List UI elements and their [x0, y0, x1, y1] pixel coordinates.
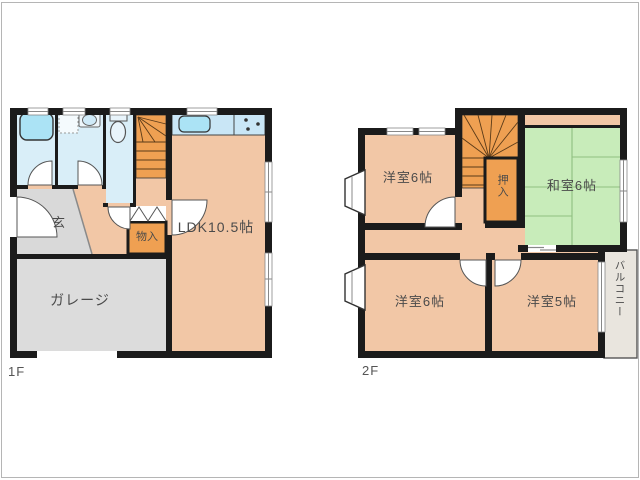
floor1-label: 1F	[8, 364, 25, 379]
window	[28, 108, 48, 115]
window	[598, 262, 605, 332]
wall-segment	[521, 253, 598, 260]
floor-plan-drawing	[0, 0, 640, 480]
wall-segment	[525, 125, 620, 128]
floor2-label: 2F	[362, 363, 379, 378]
garage-door-opening	[37, 351, 117, 358]
wall-segment	[358, 253, 460, 260]
wall-segment	[10, 185, 28, 189]
wall-segment	[52, 185, 78, 189]
storage-label: 物入	[128, 231, 166, 243]
bathtub-icon	[20, 113, 53, 140]
western-room-bottom-right-label: 洋室5帖	[510, 295, 594, 309]
window	[387, 128, 413, 135]
front-door-opening	[10, 197, 17, 237]
wall-segment	[166, 235, 172, 358]
entrance-label: 玄	[45, 216, 73, 230]
japanese-room-label: 和室6帖	[530, 179, 614, 193]
wall-segment	[485, 222, 525, 228]
wall-segment	[358, 351, 605, 358]
window	[187, 108, 217, 115]
wall-segment	[358, 128, 365, 358]
sliding-door	[528, 245, 556, 252]
wall-segment	[265, 108, 272, 358]
wall-segment	[130, 203, 136, 207]
window	[265, 253, 272, 306]
window	[110, 108, 130, 115]
wall-segment	[103, 108, 106, 189]
wall-segment	[10, 108, 272, 115]
western-room-bottom-left-label: 洋室6帖	[378, 295, 462, 309]
garage-label: ガレージ	[32, 293, 128, 308]
bay-window-icon	[345, 265, 365, 310]
kitchen-counter-icon	[172, 113, 265, 135]
wall-segment	[455, 108, 627, 115]
window	[265, 162, 272, 222]
floor-2f-plan	[345, 108, 637, 358]
floor-plan-page: LDK10.5帖 玄 物入 ガレージ 1F 洋室6帖 和室6帖 押入 洋室6帖 …	[0, 0, 640, 480]
window	[419, 128, 445, 135]
toilet-icon	[110, 112, 127, 143]
balcony-label: バルコニー	[613, 260, 625, 350]
window	[620, 160, 627, 222]
western-room-top-label: 洋室6帖	[366, 171, 450, 185]
bay-window-icon	[345, 170, 365, 215]
stairs-1f-icon	[136, 115, 166, 178]
wall-segment	[55, 108, 58, 189]
closet-label: 押入	[496, 174, 508, 214]
wall-segment	[103, 203, 108, 207]
floor-2f-base-left	[365, 128, 462, 351]
wall-segment	[133, 108, 136, 207]
wall-segment	[166, 108, 172, 200]
ldk-label: LDK10.5帖	[166, 220, 266, 235]
wall-segment	[455, 115, 462, 197]
wall-segment	[486, 253, 495, 260]
window	[63, 108, 85, 115]
kitchen-sink-icon	[179, 116, 210, 132]
wall-segment	[10, 254, 166, 259]
wall-segment	[102, 185, 106, 189]
wall-segment	[518, 115, 525, 222]
